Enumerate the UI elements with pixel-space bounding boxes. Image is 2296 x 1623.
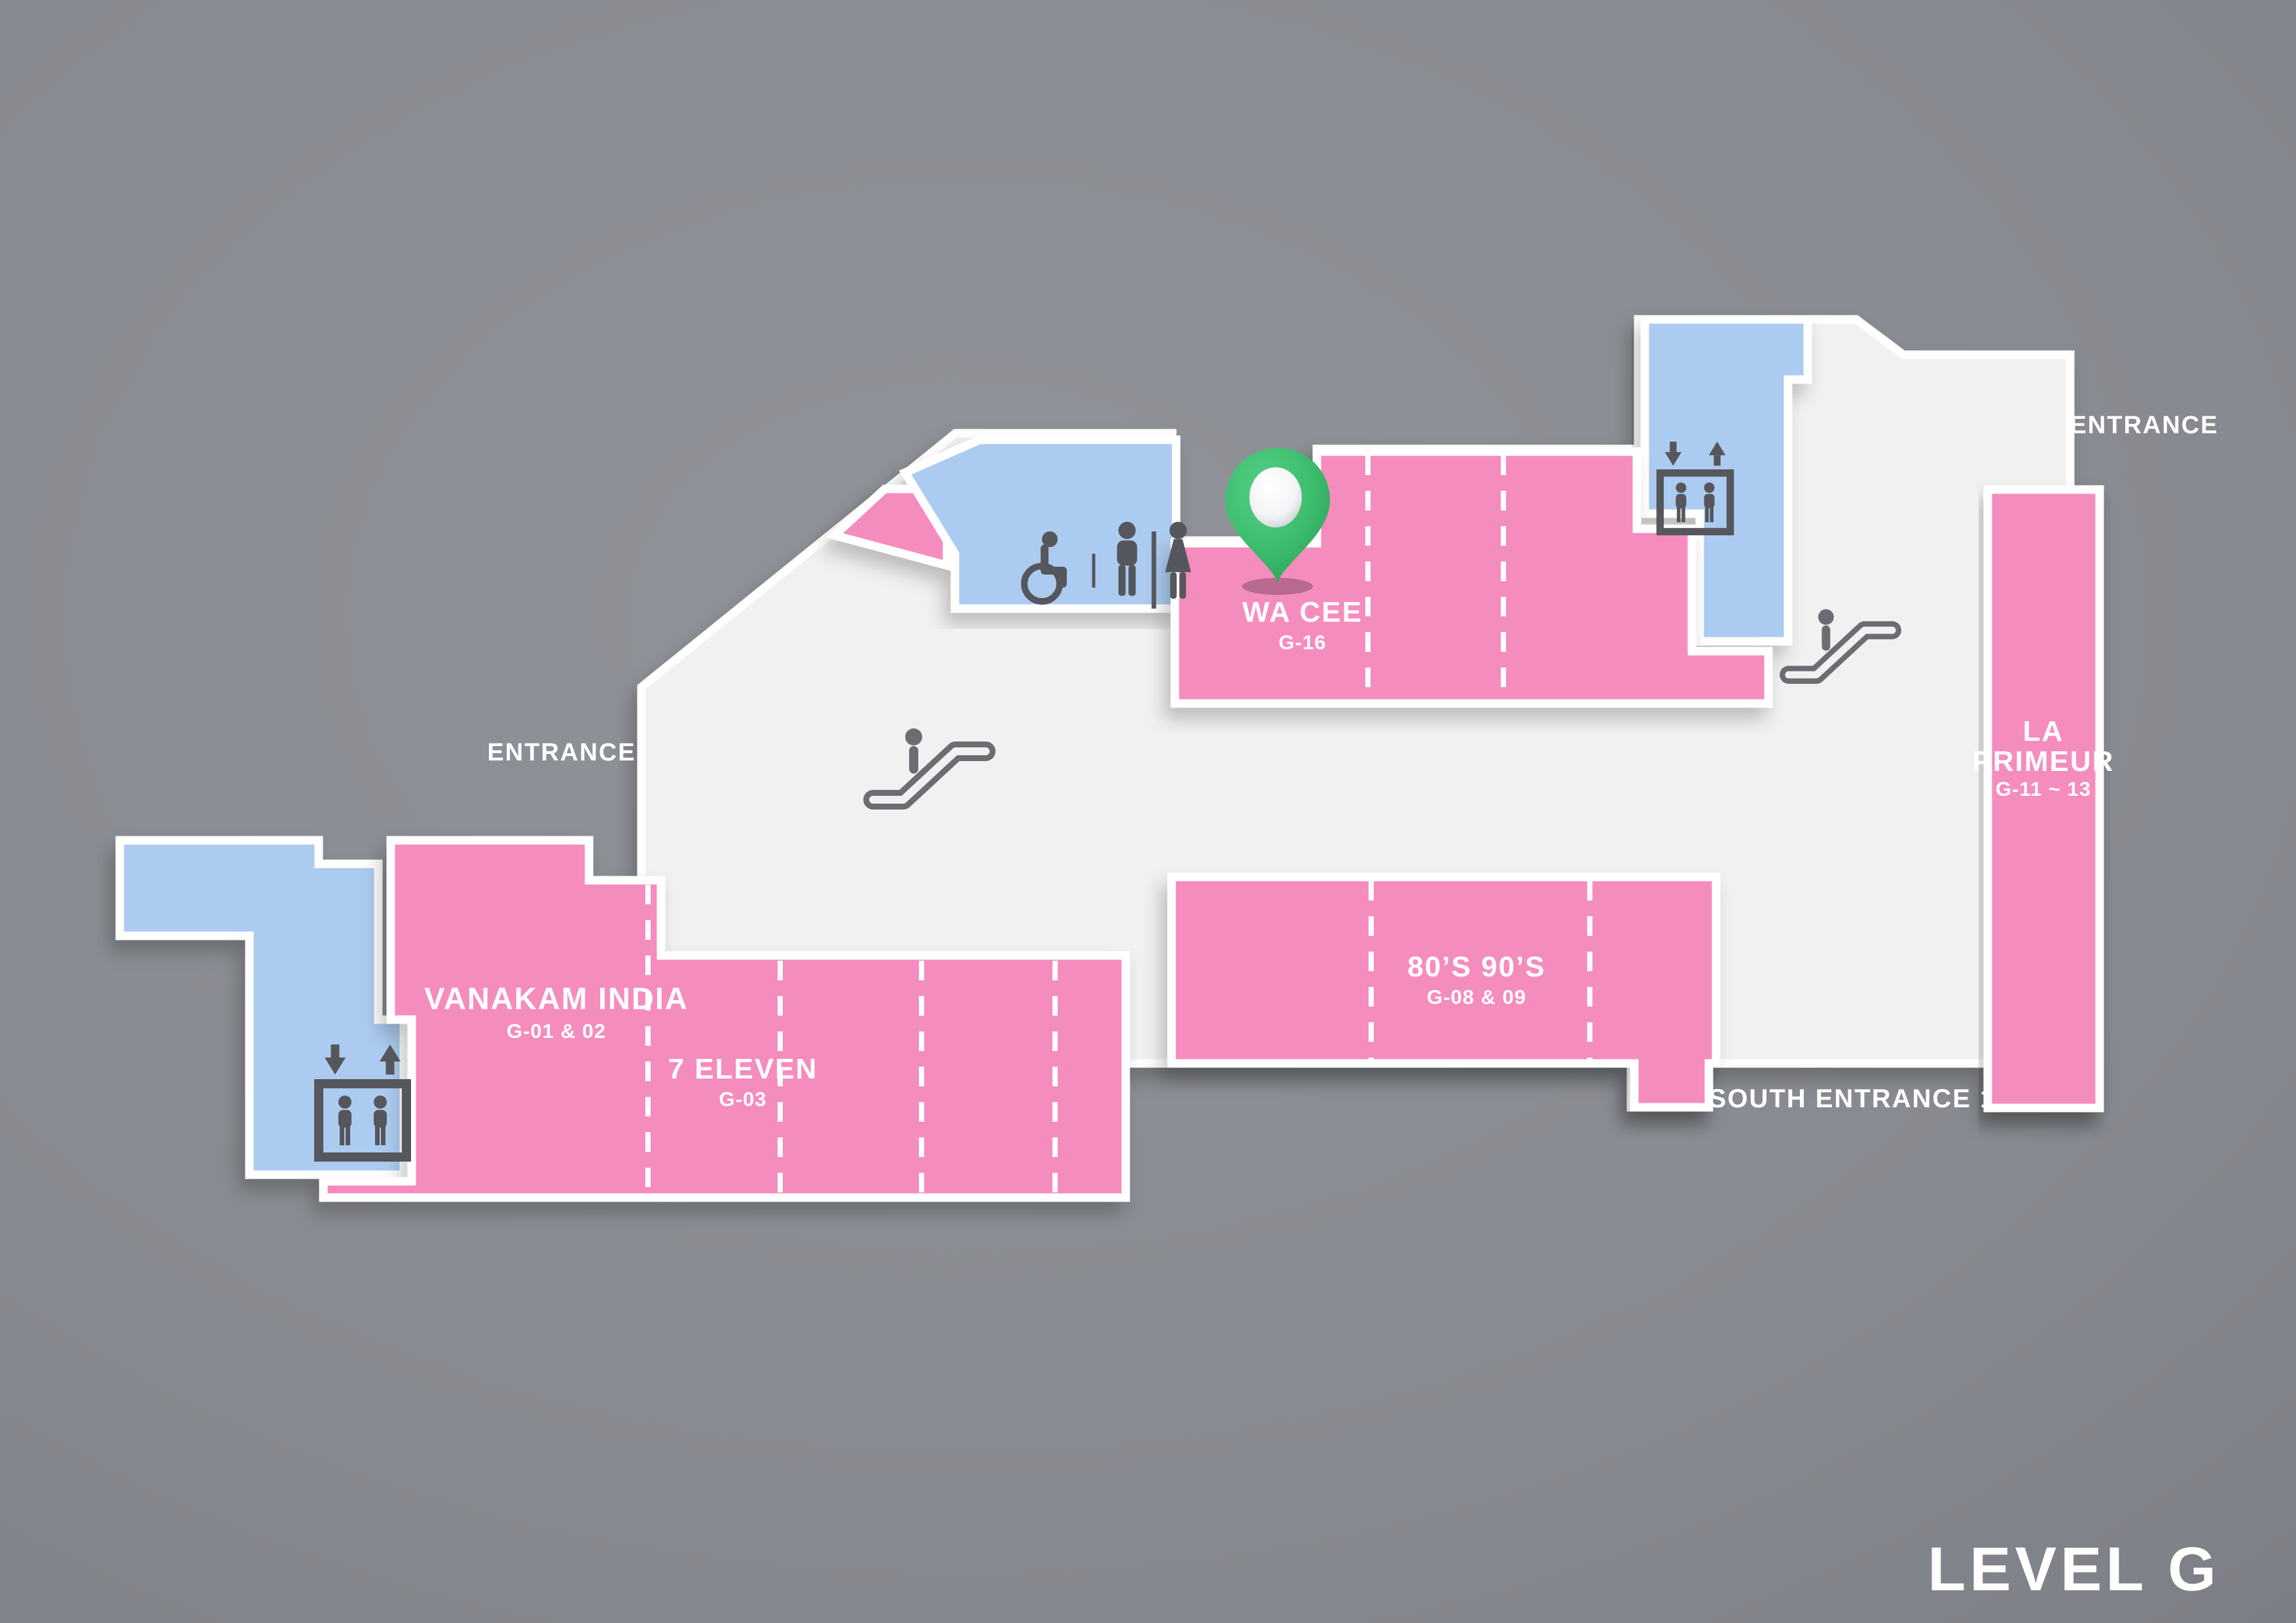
store-unit: G-03 bbox=[719, 1088, 767, 1111]
pin-center-dot bbox=[1249, 467, 1302, 527]
mall-floor-plan: WA CEE G-16 VANAKAM INDIA G-01 & 02 7 EL… bbox=[0, 0, 2296, 1623]
page-title-level: LEVEL G bbox=[1928, 1535, 2220, 1604]
store-name-line1: LA bbox=[2023, 715, 2064, 747]
store-name: VANAKAM INDIA bbox=[424, 981, 689, 1016]
entrance-label-east: ENTRANCE bbox=[2070, 412, 2218, 439]
store-name: 80’S 90’S bbox=[1407, 951, 1545, 983]
store-unit: G-08 & 09 bbox=[1427, 986, 1526, 1008]
entrance-label-west: ENTRANCE bbox=[487, 739, 636, 766]
store-name: WA CEE bbox=[1242, 596, 1363, 628]
store-unit: G-16 bbox=[1279, 631, 1327, 654]
mall-map-page: WA CEE G-16 VANAKAM INDIA G-01 & 02 7 EL… bbox=[0, 0, 2296, 1623]
store-unit: G-01 & 02 bbox=[507, 1020, 606, 1043]
store-unit: G-11 ~ 13 bbox=[1996, 777, 2091, 800]
store-name: 7 ELEVEN bbox=[668, 1053, 818, 1085]
store-name-line2: PRIMEUR bbox=[1973, 745, 2115, 777]
store-label-eighties-nineties: 80’S 90’S G-08 & 09 bbox=[1407, 951, 1545, 1008]
entrance-label-south: SOUTH ENTRANCE 1 bbox=[1709, 1084, 1996, 1113]
